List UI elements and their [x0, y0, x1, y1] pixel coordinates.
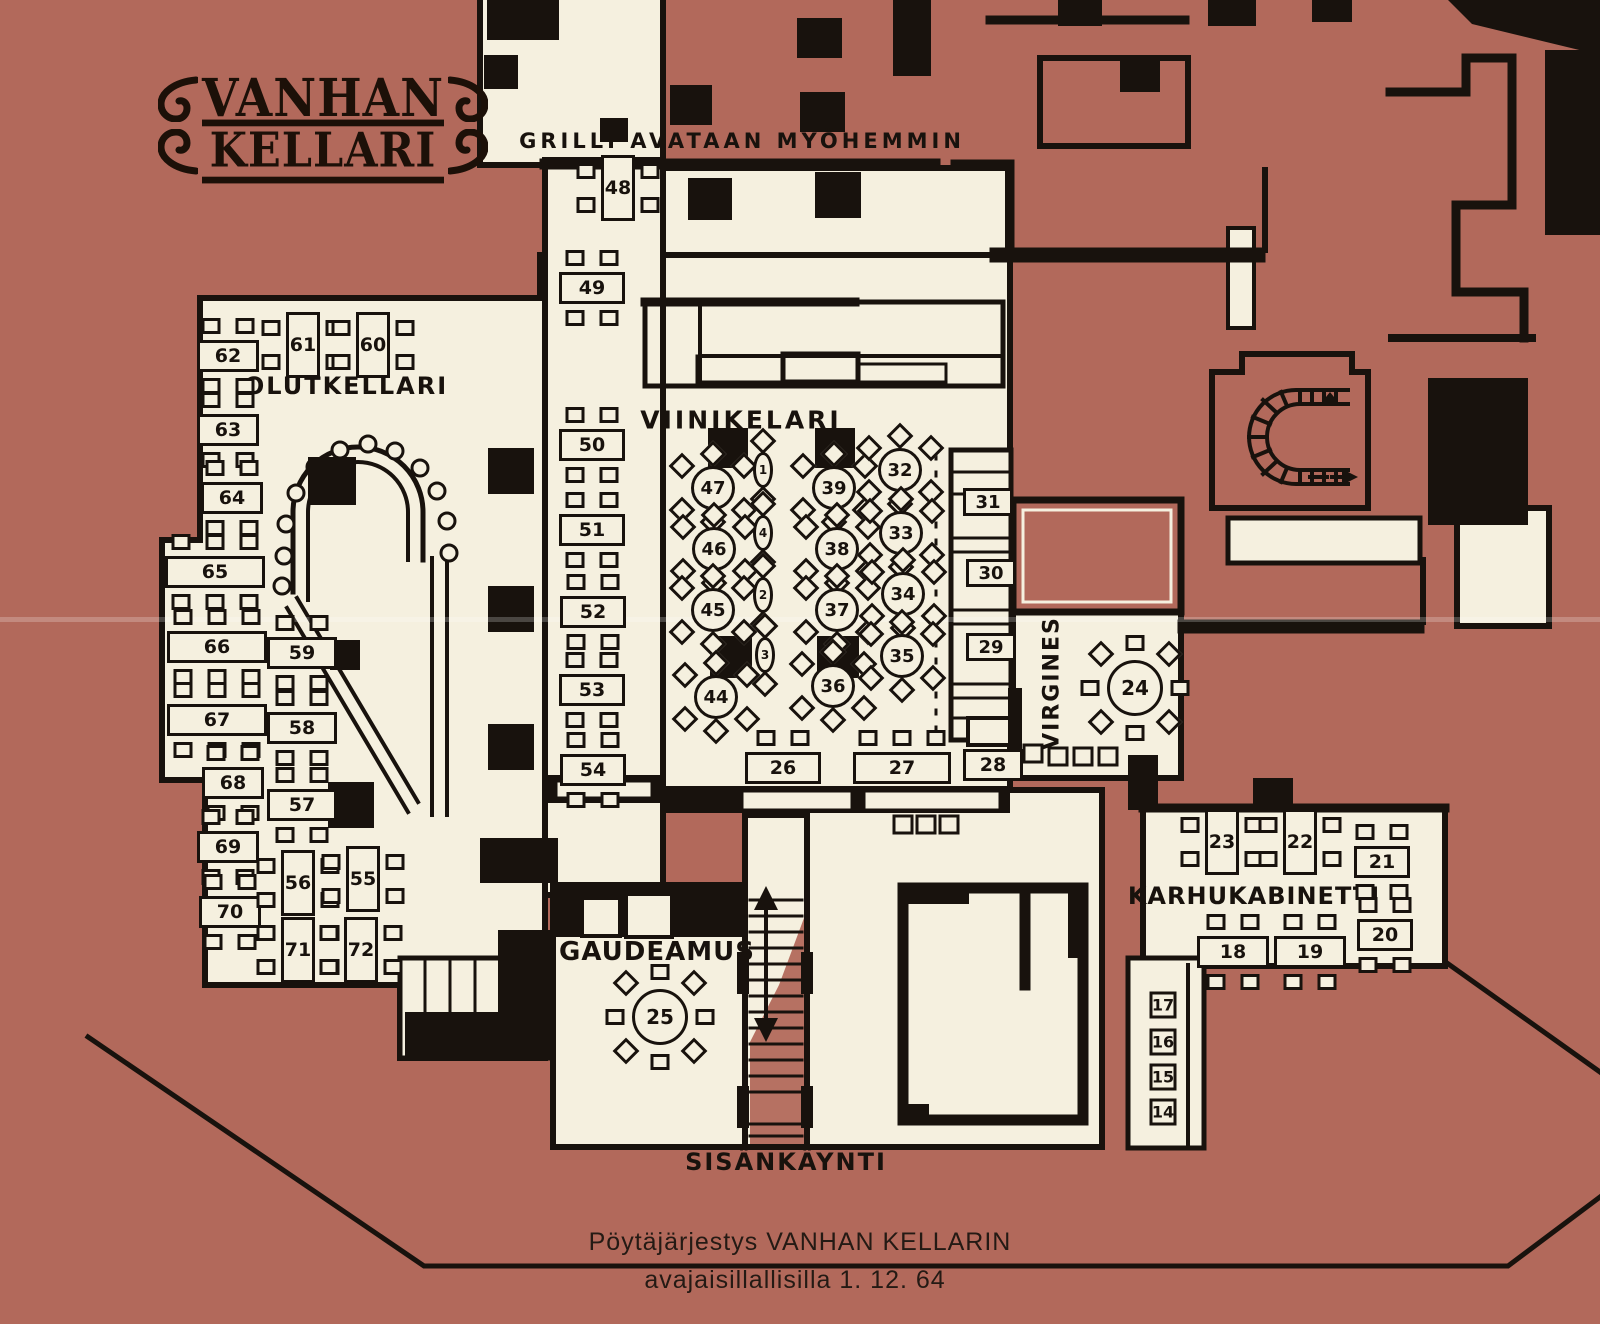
chair — [202, 392, 221, 408]
chair — [566, 712, 585, 728]
chair — [276, 827, 295, 843]
table-number: 53 — [559, 674, 625, 706]
table-number: 36 — [811, 664, 855, 708]
chair — [276, 750, 295, 766]
chair — [606, 1009, 625, 1025]
chair — [927, 730, 946, 746]
chair — [921, 559, 948, 586]
table-number: 65 — [165, 556, 265, 588]
chair — [242, 609, 261, 625]
chair — [310, 690, 329, 706]
chair — [920, 665, 947, 692]
table-number: 71 — [281, 917, 315, 983]
table-number: 28 — [963, 749, 1023, 781]
chair — [240, 460, 259, 476]
chair — [310, 750, 329, 766]
table-number: 29 — [966, 633, 1016, 661]
table-number: 18 — [1197, 936, 1269, 968]
chair — [257, 892, 276, 908]
chair — [1241, 914, 1260, 930]
chair — [202, 809, 221, 825]
chair — [310, 827, 329, 843]
chair — [757, 730, 776, 746]
table-number: 48 — [601, 155, 635, 221]
table-number: 26 — [745, 752, 821, 784]
chair — [918, 435, 945, 462]
table-number: 25 — [632, 989, 688, 1045]
chair — [669, 453, 696, 480]
chair — [174, 742, 193, 758]
chair — [566, 552, 585, 568]
chair — [1318, 914, 1337, 930]
chair — [384, 925, 403, 941]
caption-line1: Pöytäjärjestys VANHAN KELLARIN — [589, 1228, 1012, 1257]
chair — [601, 732, 620, 748]
table-number: 58 — [267, 712, 337, 744]
chair — [859, 730, 878, 746]
table-number: 22 — [1283, 809, 1317, 875]
chair — [236, 318, 255, 334]
chair — [1126, 725, 1145, 741]
table-number: 69 — [197, 831, 259, 863]
chair — [601, 792, 620, 808]
chair — [206, 594, 225, 610]
chair — [262, 320, 281, 336]
chair — [567, 574, 586, 590]
chair — [206, 460, 225, 476]
chair — [241, 745, 260, 761]
chair — [386, 854, 405, 870]
chair — [208, 609, 227, 625]
chair — [238, 934, 257, 950]
chair — [651, 1054, 670, 1070]
chair — [257, 925, 276, 941]
table-number: 35 — [880, 634, 924, 678]
table-number: 68 — [202, 767, 264, 799]
chair — [1181, 851, 1200, 867]
chair — [821, 441, 848, 468]
chair — [276, 675, 295, 691]
chair — [322, 854, 341, 870]
chair — [681, 1038, 708, 1065]
chair — [600, 552, 619, 568]
chair — [1126, 635, 1145, 651]
chair — [566, 250, 585, 266]
table-number: 54 — [560, 754, 626, 786]
chair — [789, 695, 816, 722]
chair — [174, 682, 193, 698]
chair — [600, 407, 619, 423]
chair — [1156, 709, 1183, 736]
table-number: 23 — [1205, 809, 1239, 875]
chair — [1356, 824, 1375, 840]
room-label-gaudeamus: GAUDEAMUS — [559, 937, 755, 967]
chair — [1088, 641, 1115, 668]
chair — [332, 354, 351, 370]
chair — [919, 498, 946, 525]
table-number: 4 — [753, 515, 773, 551]
chair — [172, 594, 191, 610]
chair — [600, 250, 619, 266]
table-number: 2 — [753, 577, 773, 613]
chair — [320, 925, 339, 941]
chair — [566, 467, 585, 483]
chair — [310, 767, 329, 783]
table-number: 37 — [815, 588, 859, 632]
chair — [1207, 914, 1226, 930]
table-number: 59 — [267, 637, 337, 669]
chair — [1181, 817, 1200, 833]
chair — [396, 320, 415, 336]
chair — [207, 745, 226, 761]
chair — [172, 534, 191, 550]
chair — [1359, 957, 1378, 973]
chair — [920, 621, 947, 648]
chair — [276, 767, 295, 783]
chair — [669, 619, 696, 646]
table-number: 15 — [1150, 1064, 1177, 1091]
chair — [1390, 824, 1409, 840]
chair — [202, 318, 221, 334]
chair — [566, 407, 585, 423]
chair — [204, 934, 223, 950]
chair — [790, 453, 817, 480]
table-number: 31 — [963, 488, 1013, 516]
table-number: 52 — [560, 596, 626, 628]
table-number: 24 — [1107, 660, 1163, 716]
caption-line2: avajaisillallisilla 1. 12. 64 — [644, 1266, 945, 1295]
room-label-sisankaynti: SISÄNKÄYNTI — [685, 1148, 887, 1176]
table-number: 14 — [1150, 1099, 1177, 1126]
chair — [793, 575, 820, 602]
table-number: 17 — [1150, 992, 1177, 1019]
chair — [1081, 680, 1100, 696]
table-number: 56 — [281, 850, 315, 916]
chair — [820, 707, 847, 734]
chair — [577, 197, 596, 213]
table-number: 60 — [356, 312, 390, 378]
chair — [567, 792, 586, 808]
chair — [208, 682, 227, 698]
chair — [601, 574, 620, 590]
chair — [320, 959, 339, 975]
chair — [276, 615, 295, 631]
table-number: 27 — [853, 752, 951, 784]
room-label-grilli-note: GRILLI AVATAAN MYÖHEMMIN — [519, 129, 965, 153]
table-number: 70 — [199, 896, 261, 928]
chair — [204, 874, 223, 890]
chair — [1171, 680, 1190, 696]
table-number: 20 — [1357, 919, 1413, 951]
chair — [1259, 851, 1278, 867]
table-number: 55 — [346, 846, 380, 912]
chair — [1241, 974, 1260, 990]
chair — [240, 534, 259, 550]
table-number: 1 — [753, 452, 773, 488]
chair — [851, 695, 878, 722]
table-number: 72 — [344, 917, 378, 983]
chair — [670, 514, 697, 541]
chair — [1393, 897, 1412, 913]
chair — [1393, 957, 1412, 973]
chair — [651, 964, 670, 980]
chair — [310, 675, 329, 691]
table-number: 50 — [559, 429, 625, 461]
table-number: 16 — [1150, 1029, 1177, 1056]
chair — [791, 730, 810, 746]
chair — [613, 1038, 640, 1065]
chair — [600, 652, 619, 668]
chair — [601, 634, 620, 650]
table-number: 30 — [966, 559, 1016, 587]
chair — [276, 690, 295, 706]
chair — [789, 651, 816, 678]
chair — [236, 809, 255, 825]
chair — [257, 858, 276, 874]
table-number: 67 — [167, 704, 267, 736]
chair — [703, 718, 730, 745]
chair — [240, 594, 259, 610]
chair — [641, 163, 660, 179]
chair — [332, 320, 351, 336]
chair — [1318, 974, 1337, 990]
chair — [1359, 897, 1378, 913]
chair — [1323, 817, 1342, 833]
chair — [641, 197, 660, 213]
chair — [242, 682, 261, 698]
table-number: 19 — [1274, 936, 1346, 968]
chair — [1088, 709, 1115, 736]
room-label-virgines: VIRGINES — [1040, 616, 1065, 750]
chair — [793, 619, 820, 646]
table-number: 49 — [559, 272, 625, 304]
chair — [238, 874, 257, 890]
chair — [672, 706, 699, 733]
chair — [567, 634, 586, 650]
table-number: 61 — [286, 312, 320, 378]
room-label-karhukabinetti: KARHUKABINETTI — [1128, 882, 1380, 910]
table-number: 63 — [197, 414, 259, 446]
room-label-olutkellari: OLUTKELLARI — [244, 372, 448, 400]
chair — [734, 706, 761, 733]
table-number: 51 — [559, 514, 625, 546]
chair — [1156, 641, 1183, 668]
chair — [322, 888, 341, 904]
chair — [1259, 817, 1278, 833]
chair — [262, 354, 281, 370]
chair — [236, 392, 255, 408]
chair — [577, 163, 596, 179]
chair — [174, 609, 193, 625]
chair — [600, 712, 619, 728]
chair — [206, 534, 225, 550]
chair — [566, 492, 585, 508]
chair — [703, 650, 730, 677]
table-number: 57 — [267, 789, 337, 821]
table-number: 64 — [201, 482, 263, 514]
chair — [893, 730, 912, 746]
chair — [600, 492, 619, 508]
chair — [1323, 851, 1342, 867]
chair — [567, 732, 586, 748]
room-label-viinikelari: VIINIKELARI — [640, 406, 841, 435]
chair — [386, 888, 405, 904]
chair — [672, 662, 699, 689]
chair — [700, 441, 727, 468]
chair — [613, 970, 640, 997]
table-number: 45 — [691, 588, 735, 632]
table-number: 3 — [755, 637, 775, 673]
chair — [681, 970, 708, 997]
chair — [396, 354, 415, 370]
chair — [384, 959, 403, 975]
chair — [887, 423, 914, 450]
chair — [669, 575, 696, 602]
table-number: 44 — [694, 675, 738, 719]
chair — [1207, 974, 1226, 990]
table-number: 62 — [197, 340, 259, 372]
chair — [257, 959, 276, 975]
chair — [1284, 914, 1303, 930]
chair — [566, 652, 585, 668]
page-background: VANHAN KELLARI GRILLI AVATAAN MYÖHEMMINO… — [0, 0, 1600, 1324]
chair — [310, 615, 329, 631]
chair — [600, 467, 619, 483]
table-number: 66 — [167, 631, 267, 663]
chair — [696, 1009, 715, 1025]
table-number: 21 — [1354, 846, 1410, 878]
chair — [1284, 974, 1303, 990]
chair — [889, 677, 916, 704]
tables-layer: GRILLI AVATAAN MYÖHEMMINOLUTKELLARIVIINI… — [0, 0, 1600, 1324]
chair — [566, 310, 585, 326]
chair — [600, 310, 619, 326]
